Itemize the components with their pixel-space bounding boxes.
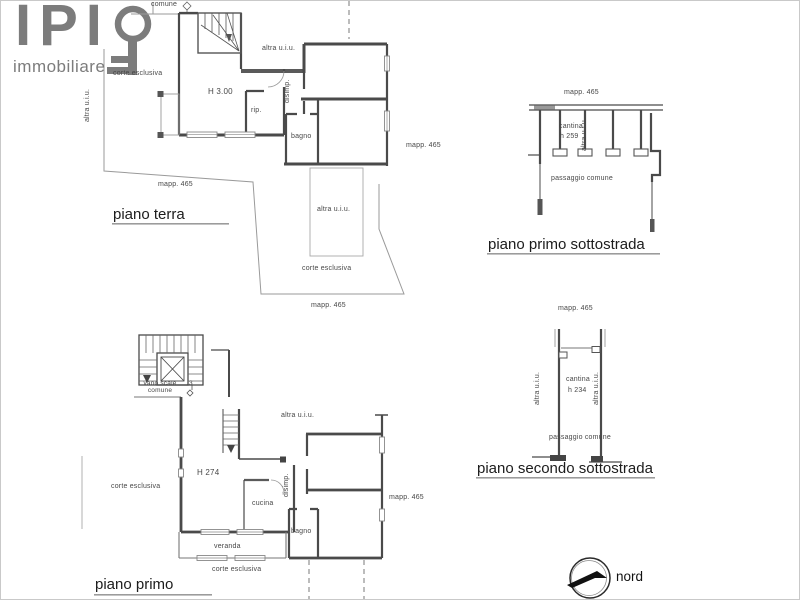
label-corte-esclusiva-bottom-primo: corte esclusiva <box>212 566 261 574</box>
label-passaggio-pss: passaggio comune <box>549 434 611 442</box>
piano-primo-walls <box>82 350 388 558</box>
label-altra-uiu-right-pss: altra u.i.u. <box>593 372 601 405</box>
label-mapp-pss: mapp. 465 <box>558 305 593 313</box>
plan-linework <box>1 1 800 600</box>
porch-terra <box>158 91 180 138</box>
label-altra-uiu-rect: altra u.i.u. <box>317 206 350 214</box>
label-mapp-bottom-terra: mapp. 465 <box>311 302 346 310</box>
logo-tagline: immobiliare <box>13 57 105 77</box>
piano-primo-sottostrada-walls <box>528 105 663 232</box>
label-room-height-primo: H 274 <box>197 468 219 477</box>
label-comune: comune <box>151 1 177 9</box>
label-corte-esclusiva-left-primo: corte esclusiva <box>111 483 160 491</box>
title-piano-terra: piano terra <box>113 206 185 223</box>
compass-north-label: nord <box>616 569 643 584</box>
title-rule-piano-terra <box>112 223 229 225</box>
key-icon <box>107 9 148 75</box>
label-cantina-pps: cantina <box>559 123 583 131</box>
label-corte-esclusiva-bottom-terra: corte esclusiva <box>302 265 351 273</box>
label-rip: rip. <box>251 107 262 115</box>
label-mapp-pps: mapp. 465 <box>564 89 599 97</box>
label-altra-uiu-left-pss: altra u.i.u. <box>534 372 542 405</box>
label-bagno-primo: bagno <box>291 528 311 536</box>
piano-primo-windows <box>179 437 385 561</box>
label-altra-uiu-primo: altra u.i.u. <box>281 412 314 420</box>
staircase-elevator-primo <box>139 335 203 385</box>
label-stair-number: 3 <box>189 380 193 387</box>
label-cantina-height-pps: h 259 <box>560 133 579 141</box>
label-cantina-pss: cantina <box>566 376 590 384</box>
title-rule-pss <box>476 477 655 479</box>
label-disimp-terra: disimp. <box>284 79 292 103</box>
floor-plan-sheet: IPI immobiliare comune corte esclusiva a… <box>0 0 800 600</box>
label-mapp-primo: mapp. 465 <box>389 494 424 502</box>
logo-wordmark: IPI <box>15 0 110 59</box>
label-mapp-right-terra: mapp. 465 <box>406 142 441 150</box>
title-rule-piano-primo <box>94 594 212 596</box>
label-altra-uiu-pps: altra u.i.u. <box>581 118 589 151</box>
title-piano-primo-sottostrada: piano primo sottostrada <box>488 236 645 253</box>
label-cucina: cucina <box>252 500 273 508</box>
title-piano-primo: piano primo <box>95 576 173 593</box>
label-corte-esclusiva-top: corte esclusiva <box>113 70 162 78</box>
label-mapp-left-terra: mapp. 465 <box>158 181 193 189</box>
label-altra-uiu-left: altra u.i.u. <box>84 89 92 122</box>
title-rule-pps <box>487 253 660 255</box>
label-disimp-primo: disimp. <box>283 473 291 497</box>
label-altra-uiu-mid: altra u.i.u. <box>262 45 295 53</box>
site-boundary-terra <box>104 2 404 294</box>
label-veranda: veranda <box>214 543 241 551</box>
label-cantina-height-pss: h 234 <box>568 387 587 395</box>
north-compass <box>567 558 610 598</box>
label-room-height-terra: H 3.00 <box>208 87 233 96</box>
label-passaggio-pps: passaggio comune <box>551 175 613 183</box>
label-bagno-terra: bagno <box>291 133 311 141</box>
title-piano-secondo-sottostrada: piano secondo sottostrada <box>477 460 653 477</box>
piano-secondo-sottostrada-walls <box>532 329 622 462</box>
staircase-terra <box>198 13 241 53</box>
north-arrow <box>567 571 607 588</box>
label-vano-scale-comune: vano scale comune <box>139 380 181 395</box>
